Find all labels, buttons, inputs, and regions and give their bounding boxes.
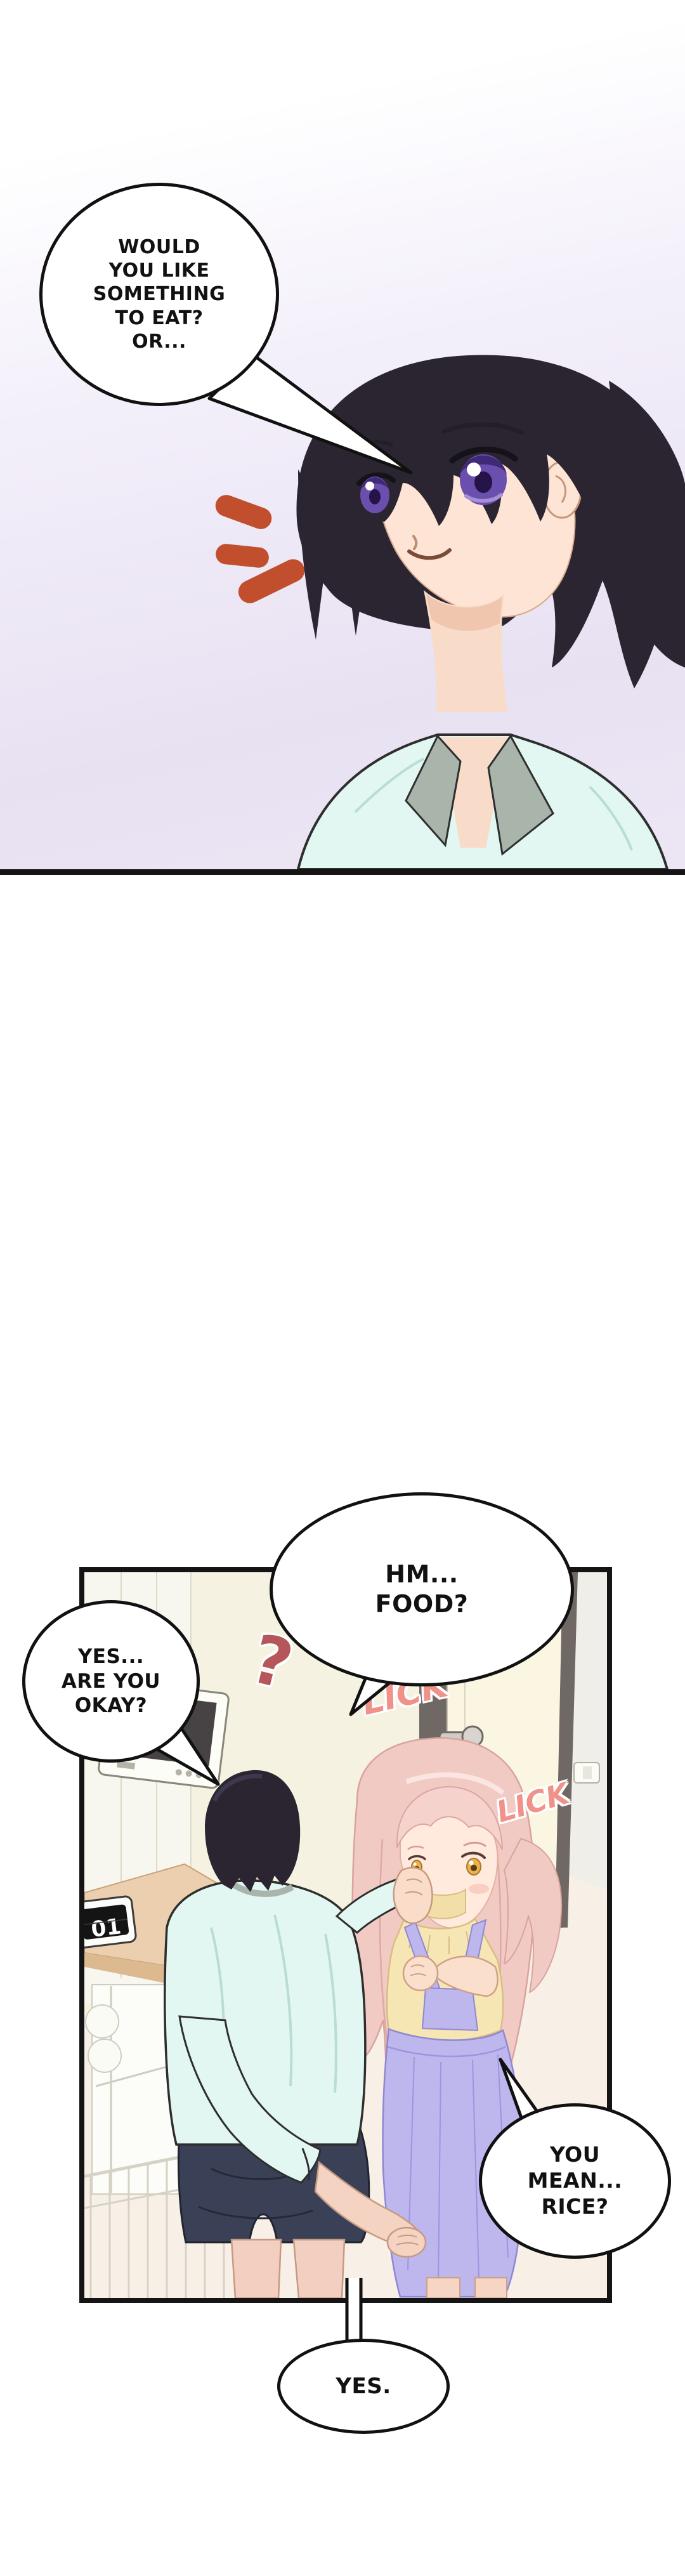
bubble-line: FOOD? (375, 1589, 469, 1619)
light-switch (574, 1763, 599, 1783)
cup (86, 2005, 119, 2038)
bubble-line: HM... (385, 1560, 458, 1589)
bubble-line: MEAN... (528, 2168, 623, 2194)
bubble-line: YES. (336, 2373, 391, 2400)
boy-hand-on-hip (388, 2228, 426, 2257)
speech-bubble-you-mean-rice: YOU MEAN... RICE? (479, 2103, 671, 2259)
bubble-line: OKAY? (75, 1693, 147, 1718)
speech-bubble-yes: YES. (277, 2339, 450, 2434)
bubble-line: YES... (78, 1645, 144, 1669)
bubble-line: ARE YOU (62, 1669, 160, 1693)
bubble-line: YOU LIKE (109, 259, 210, 282)
speech-bubble-yes-are-you-okay: YES... ARE YOU OKAY? (22, 1600, 200, 1763)
speech-bubble-hm-food: HM... FOOD? (270, 1492, 574, 1686)
flip-clock: 01 (84, 1896, 136, 1948)
cup (88, 2039, 121, 2072)
bubble-line: OR... (132, 330, 186, 353)
girl-fist (403, 1956, 438, 1990)
speech-bubble-would-you-like: WOULD YOU LIKE SOMETHING TO EAT? OR... (39, 183, 279, 406)
boy-hand-on-cheek (394, 1868, 433, 1923)
bubble-line: RICE? (541, 2194, 608, 2220)
bubble-line: YOU (550, 2142, 600, 2168)
top-panel-artwork (0, 0, 685, 869)
bubble-line: WOULD (118, 235, 200, 259)
comic-page: { "page": {"width": 1080, "height": 4060… (0, 0, 685, 2576)
bubble-line: SOMETHING (93, 282, 225, 306)
top-panel (0, 0, 685, 875)
bubble-line: TO EAT? (115, 306, 203, 330)
emphasis-dashes-icon (212, 492, 308, 607)
clock-digits: 01 (89, 1914, 122, 1942)
